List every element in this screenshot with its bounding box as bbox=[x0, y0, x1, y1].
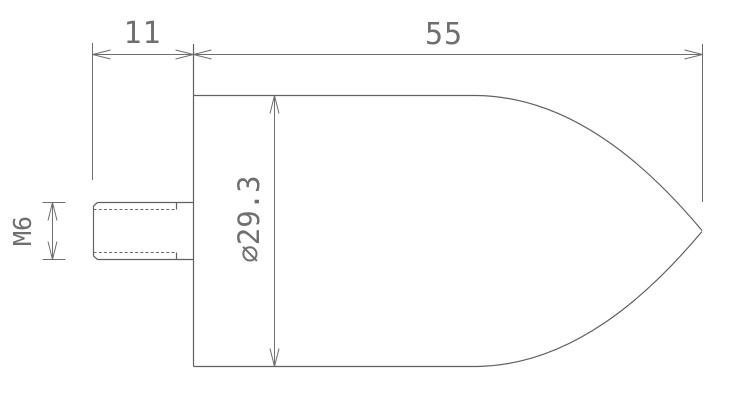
dimension-body-diameter: ⌀29.3 bbox=[232, 96, 279, 367]
part-outline bbox=[194, 44, 703, 367]
thread-stud bbox=[94, 203, 194, 260]
body-bottom-and-nose bbox=[194, 232, 703, 367]
dim-label-thread-size: M6 bbox=[8, 216, 37, 246]
dimension-thread-size: M6 bbox=[8, 203, 66, 260]
drawing-sheet: 11 55 ⌀29.3 M6 bbox=[0, 0, 744, 401]
dim-label-body-diameter: ⌀29.3 bbox=[232, 175, 266, 262]
stud-chamfer-bottom bbox=[94, 256, 98, 260]
dim-label-stud-length: 11 bbox=[123, 16, 161, 51]
drawing-canvas: 11 55 ⌀29.3 M6 bbox=[0, 0, 744, 401]
stud-chamfer-top bbox=[94, 203, 98, 207]
dimension-overall-length: 55 bbox=[194, 17, 703, 202]
body-top-and-nose bbox=[194, 96, 703, 231]
dimension-stud-length: 11 bbox=[93, 16, 194, 180]
dim-label-overall-length: 55 bbox=[425, 17, 463, 52]
